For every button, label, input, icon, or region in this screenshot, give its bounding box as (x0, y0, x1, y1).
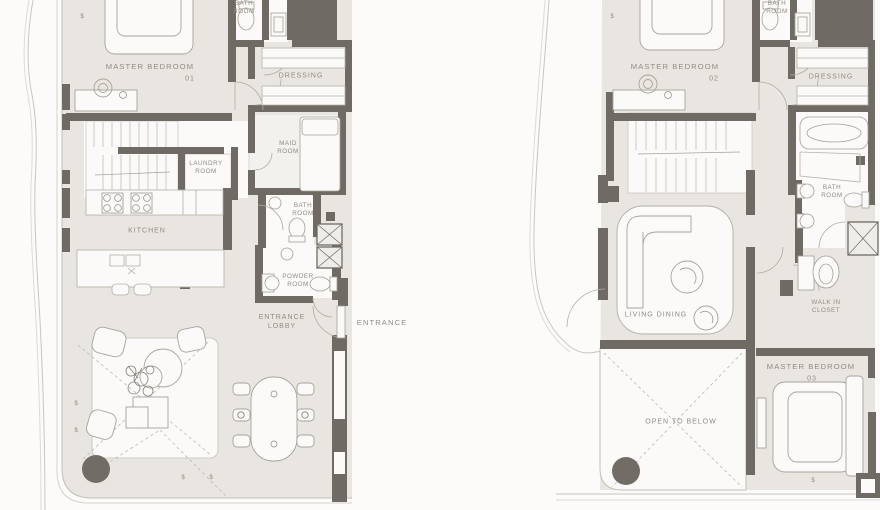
label-kitchen: KITCHEN (128, 226, 166, 235)
shaft-right (848, 222, 878, 255)
site-boundary-left (24, 0, 45, 510)
label-dressing-left: DRESSING (279, 71, 324, 80)
label-master-bedroom-02: MASTER BEDROOM (631, 62, 719, 72)
label-master-bedroom-01: MASTER BEDROOM (106, 62, 194, 72)
label-dressing-right: DRESSING (809, 72, 854, 81)
section-mark: $ (80, 14, 83, 20)
label-master-bedroom-01-no: 01 (185, 74, 195, 83)
corner-block-right (856, 473, 880, 498)
site-boundary-right (530, 0, 602, 353)
label-master-bedroom-02-no: 02 (709, 74, 719, 83)
label-entrance-lobby: ENTRANCE LOBBY (251, 313, 313, 331)
section-mark: $ (74, 428, 77, 434)
stairs-right (628, 113, 752, 193)
section-mark: $ (610, 14, 613, 20)
windows-left (334, 351, 345, 474)
label-living-dining: LIVING DINING (625, 310, 687, 319)
column-right (612, 457, 640, 485)
section-mark: $ (181, 475, 184, 481)
section-mark: $ (811, 478, 814, 484)
maid-room-bed (300, 117, 340, 191)
label-master-bedroom-03-no: 03 (807, 374, 817, 383)
floor-plan-page: BATH ROOM MASTER BEDROOM 01 DRESSING MAI… (0, 0, 880, 510)
walk-in-closet-icons (798, 256, 839, 290)
section-mark: $ (74, 401, 77, 407)
label-walk-in-closet: WALK IN CLOSET (803, 299, 849, 315)
floor-plan-drawing (0, 0, 880, 510)
label-entrance: ENTRANCE (357, 318, 408, 328)
label-bath-room-right: BATH ROOM (816, 184, 848, 200)
section-mark: $ (209, 475, 212, 481)
label-bath-room-top-right: BATH ROOM (761, 0, 793, 16)
stairs-left (86, 121, 178, 197)
label-bath-room-top-left: BATH ROOM (228, 0, 260, 16)
label-powder-room: POWDER ROOM (277, 273, 319, 289)
label-bath-room-mid-left: BATH ROOM (287, 202, 319, 218)
label-master-bedroom-03: MASTER BEDROOM (767, 362, 855, 372)
column-left (82, 455, 110, 483)
label-laundry-room: LAUNDRY ROOM (183, 160, 229, 176)
bed-master-03 (757, 376, 863, 476)
label-open-to-below: OPEN TO BELOW (645, 417, 716, 426)
label-maid-room: MAID ROOM (272, 140, 304, 156)
